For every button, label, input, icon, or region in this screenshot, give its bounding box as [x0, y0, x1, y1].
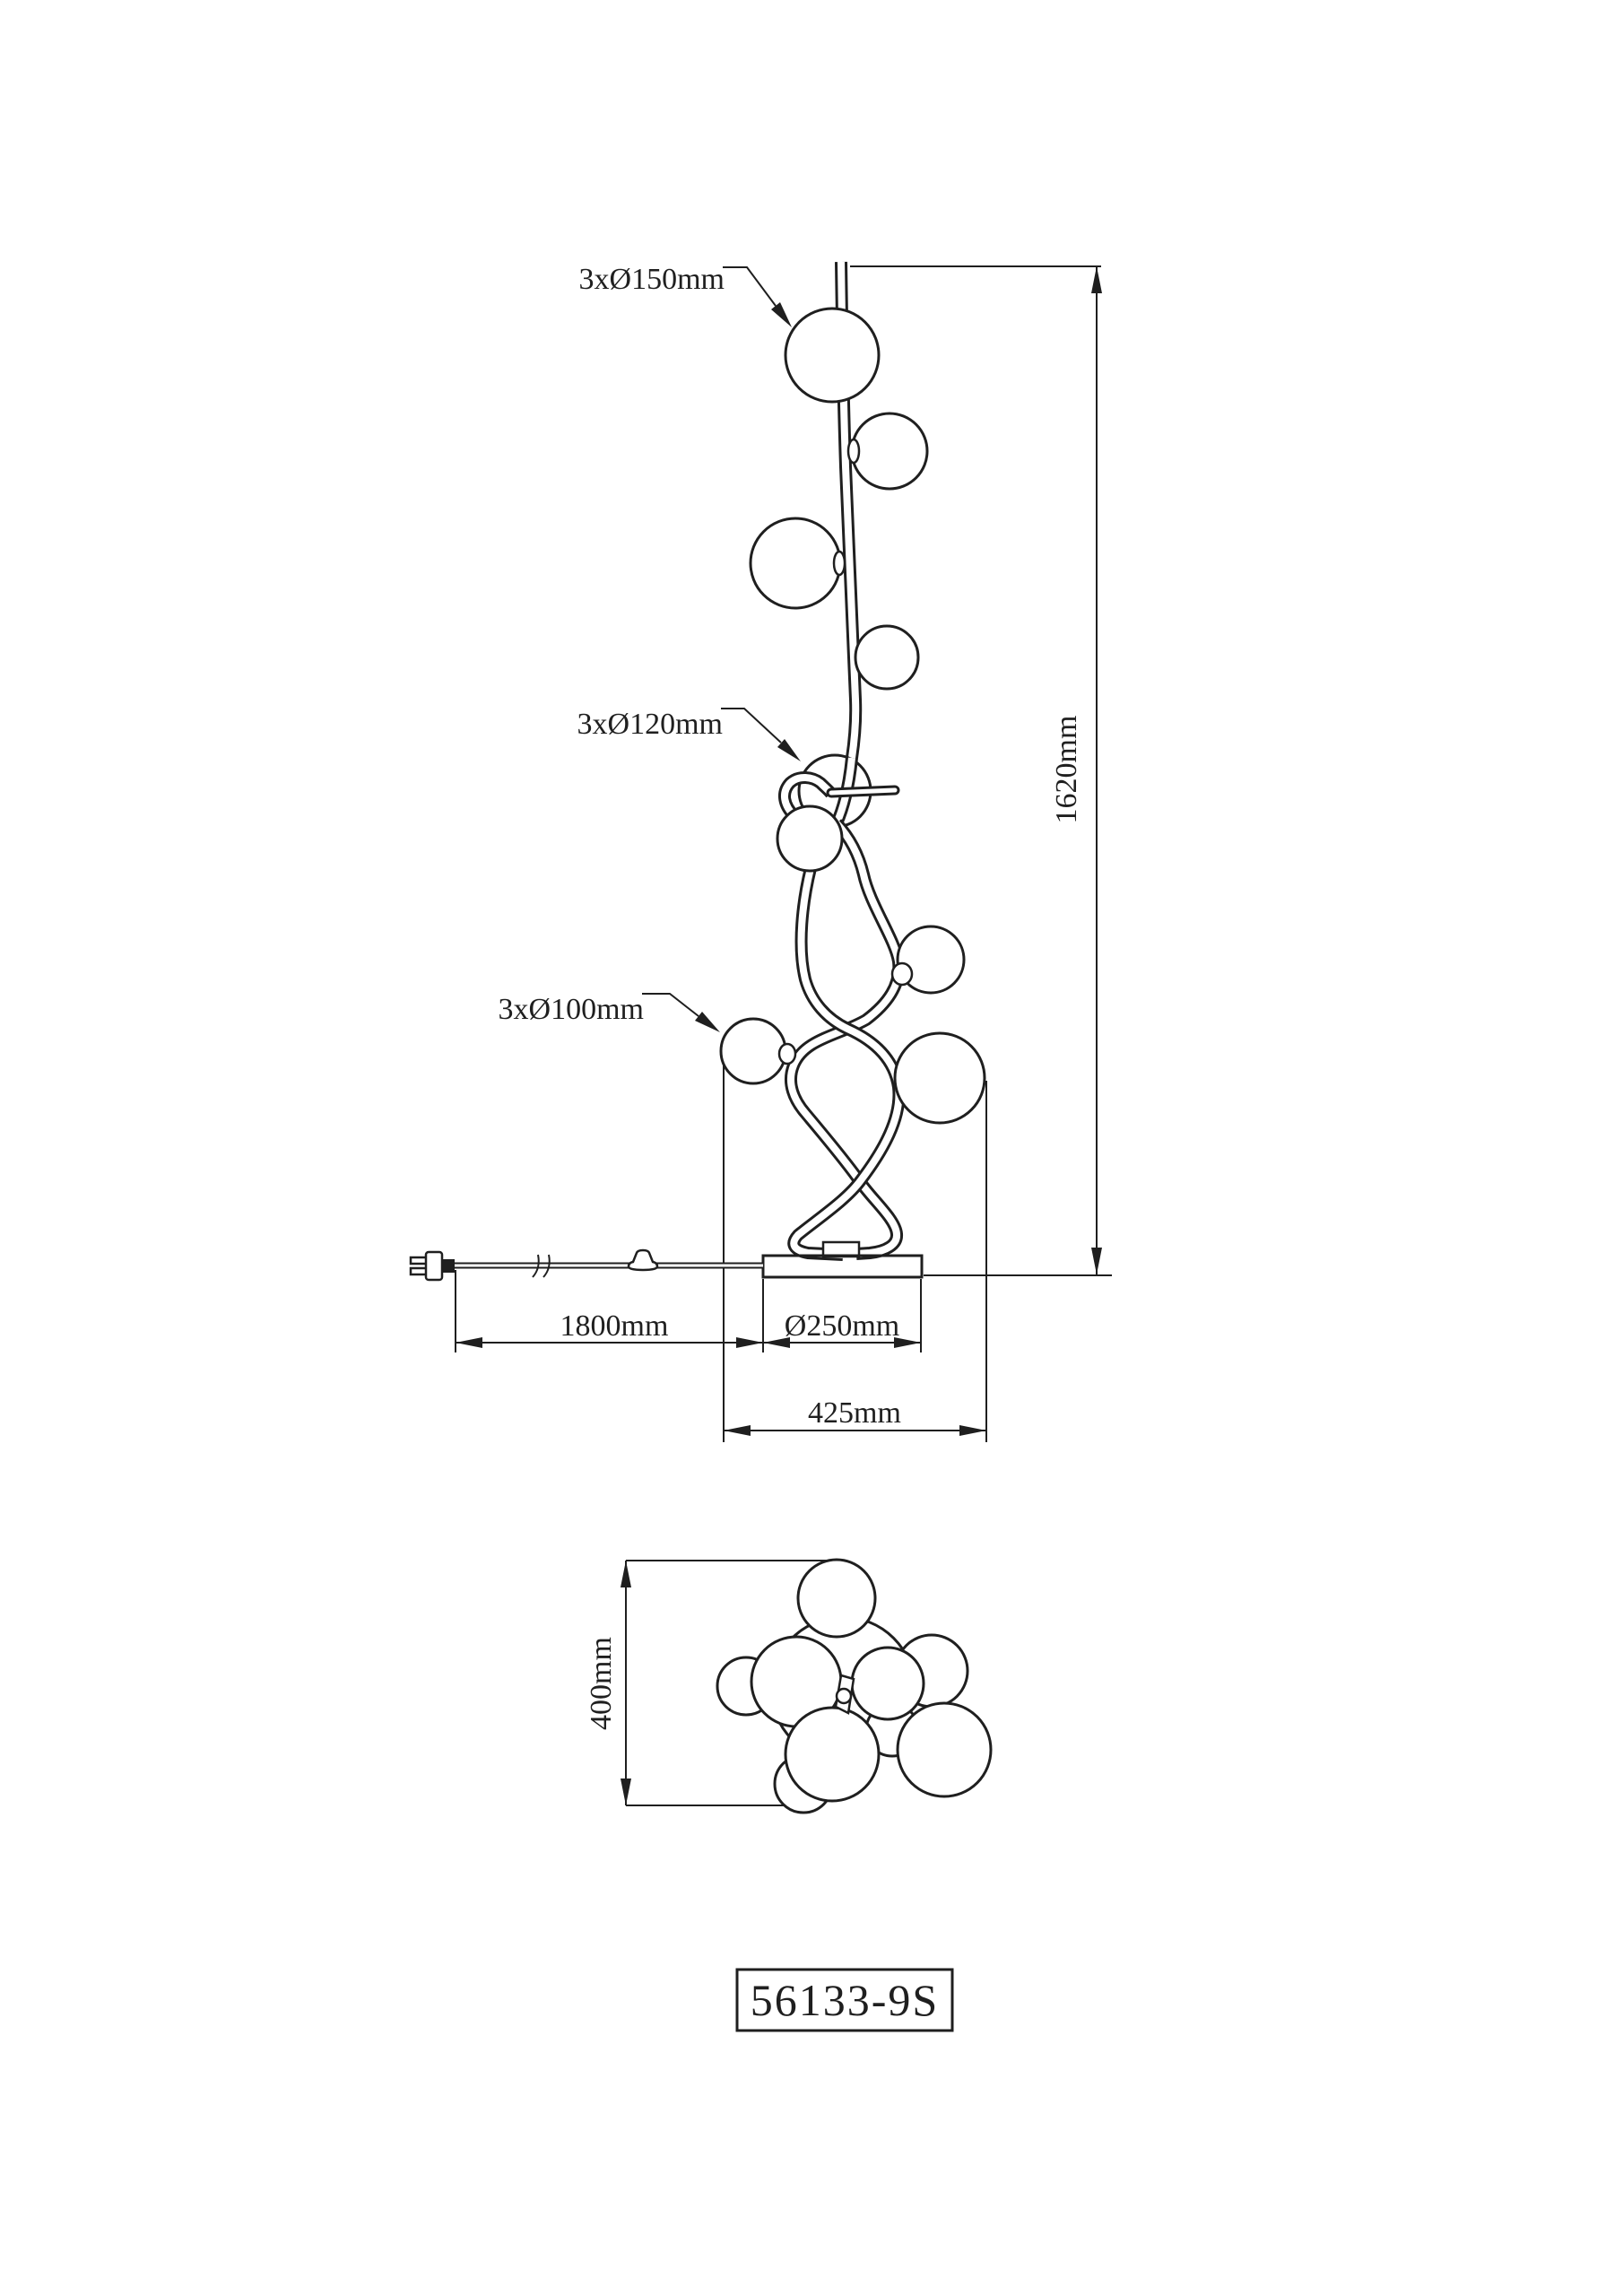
arrow-right-icon — [959, 1425, 986, 1436]
width-dimension-label: 425mm — [808, 1396, 901, 1430]
drawing-sheet: 1620mm 425mm 1800mm Ø250mm — [0, 0, 1623, 2296]
sphere-120-upper — [852, 413, 927, 489]
cord-dimension-label: 1800mm — [560, 1309, 669, 1343]
spheres-120-label: 3xØ120mm — [577, 708, 723, 741]
sphere-connector — [779, 1044, 795, 1064]
sphere-connector — [834, 552, 845, 575]
inline-switch-icon — [629, 1250, 657, 1270]
plug-neck — [441, 1259, 455, 1273]
arrow-left-icon — [724, 1425, 751, 1436]
label-spheres-150: 3xØ150mm — [579, 263, 792, 327]
model-number: 56133-9S — [751, 1975, 939, 2025]
arrow-right-icon — [736, 1337, 763, 1348]
sphere-100-lower — [721, 1019, 785, 1083]
sphere-120-top-view — [798, 1560, 875, 1637]
sphere-100-knot — [777, 806, 842, 871]
arrow-left-icon — [456, 1337, 482, 1348]
switch-body — [629, 1250, 657, 1270]
knot-rod-core — [831, 790, 895, 793]
sphere-cluster-top-view — [717, 1560, 991, 1813]
sphere-120-top-view — [852, 1648, 924, 1719]
sphere-150-top-view — [898, 1703, 991, 1796]
leader-line — [723, 267, 776, 306]
front-view: 1620mm 425mm 1800mm Ø250mm — [411, 262, 1112, 1442]
sphere-150-bottom — [895, 1033, 985, 1123]
cord-dimension: 1800mm — [456, 1270, 763, 1352]
power-cord-assembly — [411, 1250, 763, 1280]
title-block: 56133-9S — [737, 1970, 952, 2031]
leader-arrow-icon — [695, 1012, 720, 1032]
center-hub-top-view — [837, 1689, 851, 1703]
plug-body — [426, 1252, 442, 1280]
power-plug-icon — [411, 1252, 455, 1280]
base-dimension: Ø250mm — [763, 1279, 921, 1352]
sphere-connector — [892, 963, 912, 985]
lamp-front — [721, 262, 985, 1277]
sphere-150-top-view — [785, 1708, 879, 1801]
lamp-technical-drawing: 1620mm 425mm 1800mm Ø250mm — [0, 0, 1623, 2296]
arrow-down-icon — [1091, 1248, 1102, 1274]
label-spheres-120: 3xØ120mm — [577, 708, 801, 761]
arrow-up-icon — [1091, 266, 1102, 293]
sphere-150-top — [785, 309, 879, 402]
spheres-100-label: 3xØ100mm — [499, 993, 644, 1026]
arrow-up-icon — [621, 1561, 631, 1587]
depth-dimension-label: 400mm — [585, 1637, 618, 1730]
height-dimension-label: 1620mm — [1050, 716, 1083, 824]
base-dimension-label: Ø250mm — [785, 1309, 899, 1343]
leader-line — [642, 994, 699, 1016]
leader-line — [721, 709, 781, 743]
top-view: 400mm — [585, 1560, 991, 1813]
sphere-100-upper — [855, 626, 918, 689]
sphere-150-middle — [751, 518, 840, 608]
leader-arrow-icon — [771, 302, 792, 327]
spheres-150-label: 3xØ150mm — [579, 263, 725, 296]
label-spheres-100: 3xØ100mm — [499, 993, 720, 1032]
arrow-down-icon — [621, 1779, 631, 1805]
sphere-connector — [848, 439, 859, 463]
